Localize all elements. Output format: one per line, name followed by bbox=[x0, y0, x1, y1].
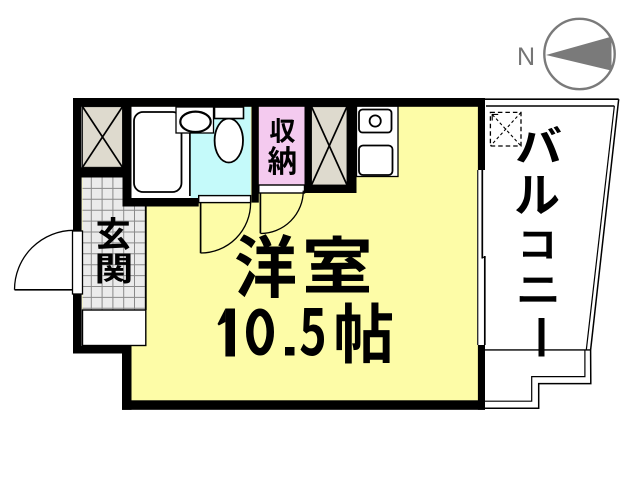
svg-text:N: N bbox=[517, 43, 535, 71]
